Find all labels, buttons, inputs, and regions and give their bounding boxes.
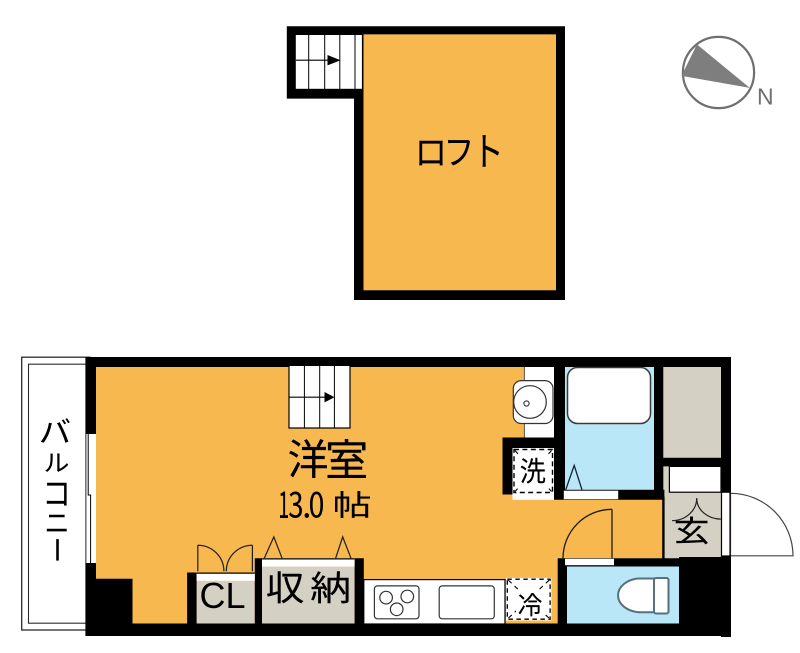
svg-text:CL: CL <box>200 575 246 616</box>
svg-text:N: N <box>757 84 774 110</box>
